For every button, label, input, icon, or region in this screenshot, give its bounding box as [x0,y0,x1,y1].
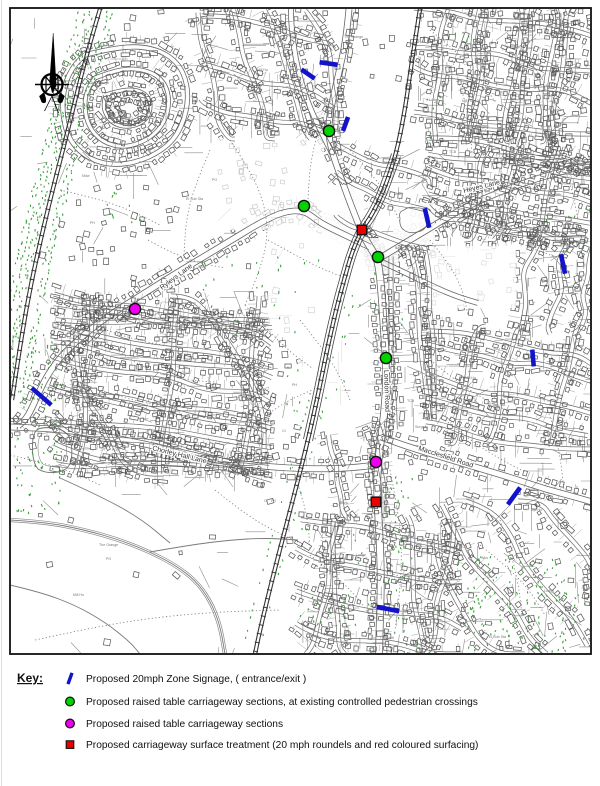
svg-text:Wks: Wks [332,636,339,640]
svg-text:Proposed 20mph Zone Signage, (: Proposed 20mph Zone Signage, ( entrance/… [86,674,306,685]
svg-text:Bank: Bank [340,501,348,505]
svg-text:Lodge: Lodge [429,98,439,102]
svg-text:El Sub Sta: El Sub Sta [553,270,570,274]
svg-text:Lodge: Lodge [544,589,554,593]
svg-text:El Sub Sta: El Sub Sta [488,403,505,407]
svg-text:TCB: TCB [274,114,282,118]
svg-text:PH: PH [271,499,276,503]
svg-text:Mdw: Mdw [82,174,90,178]
svg-text:PO: PO [106,557,111,561]
svg-text:PO: PO [212,178,217,182]
svg-text:Mill Ho: Mill Ho [257,68,268,72]
svg-text:Mill Ho: Mill Ho [462,99,473,103]
svg-text:Mdw: Mdw [394,192,402,196]
svg-text:Wks: Wks [331,602,338,606]
svg-text:Surgery: Surgery [415,425,428,429]
svg-text:Bank: Bank [395,246,403,250]
svg-text:Surgery: Surgery [476,125,489,129]
svg-text:Proposed raised table carriage: Proposed raised table carriageway sectio… [86,697,478,708]
svg-text:London Road: London Road [382,370,390,412]
svg-text:Bank: Bank [309,476,317,480]
svg-text:Proposed raised table carriage: Proposed raised table carriageway sectio… [86,719,283,730]
svg-text:PO: PO [112,448,117,452]
svg-text:Key:: Key: [17,671,43,685]
svg-text:The Grange: The Grange [344,35,363,39]
svg-text:Sch: Sch [522,157,528,161]
svg-text:El Sub Sta: El Sub Sta [186,197,203,201]
svg-text:Croft: Croft [198,265,206,269]
svg-text:LB: LB [516,69,521,73]
svg-text:The Grange: The Grange [99,543,118,547]
svg-text:PO: PO [100,126,105,130]
svg-text:Croft: Croft [404,542,412,546]
svg-text:Proposed carriageway surface t: Proposed carriageway surface treatment (… [86,740,478,751]
svg-text:PH: PH [90,221,95,225]
svg-text:The Grange: The Grange [90,81,109,85]
svg-text:Mill Ho: Mill Ho [465,376,476,380]
svg-text:Mill Ho: Mill Ho [531,508,542,512]
svg-text:Croft: Croft [386,636,394,640]
svg-text:PH: PH [292,383,297,387]
svg-text:Lodge: Lodge [356,553,366,557]
svg-text:El Sub Sta: El Sub Sta [489,635,506,639]
svg-text:Wks: Wks [481,556,488,560]
svg-text:Mill Ho: Mill Ho [73,593,84,597]
svg-text:Ct: Ct [282,429,286,433]
svg-text:Ct: Ct [251,402,255,406]
svg-text:TCB: TCB [449,150,457,154]
svg-text:Ct: Ct [487,575,491,579]
svg-text:TCB: TCB [407,399,415,403]
svg-text:Ct: Ct [264,499,268,503]
svg-text:LB: LB [395,378,400,382]
